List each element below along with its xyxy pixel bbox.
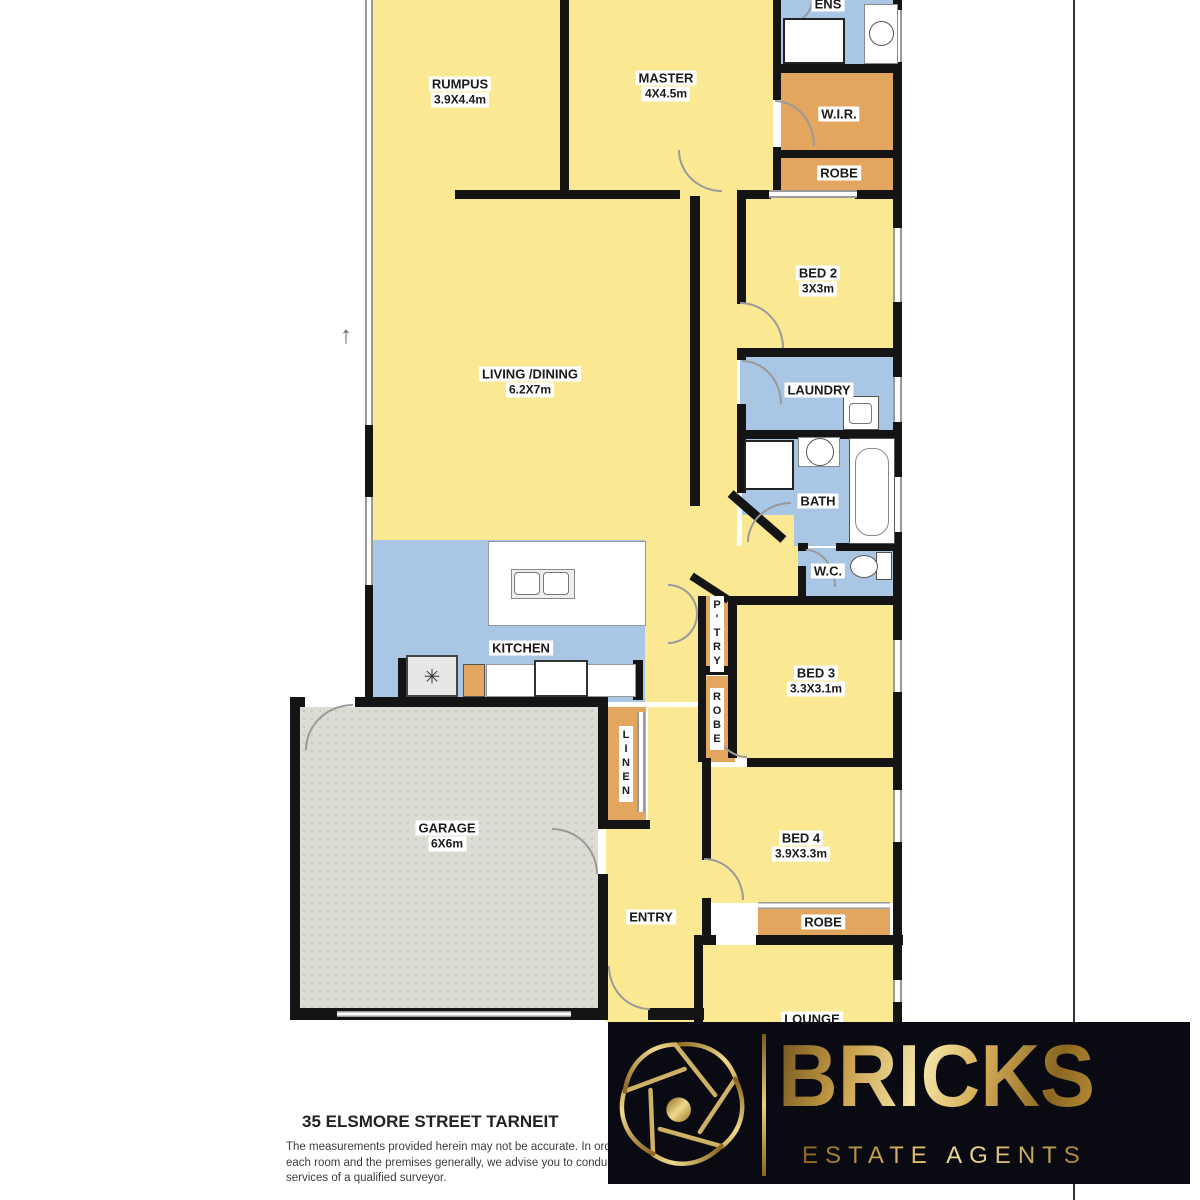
logo-center-dot (666, 1097, 691, 1122)
room-name: GARAGE (415, 821, 478, 836)
room-label-bed4: BED 4 3.9X3.3m (772, 831, 830, 862)
room-label-kitchen: KITCHEN (489, 641, 553, 656)
room-dims: 6.2X7m (506, 383, 554, 398)
wall-segment (365, 425, 373, 500)
window (893, 640, 902, 692)
wall-segment (290, 697, 305, 707)
cooktop (534, 660, 588, 697)
wall-segment (798, 566, 806, 598)
window (365, 497, 373, 585)
window (893, 980, 902, 1002)
wall-segment (702, 898, 711, 938)
north-arrow-icon: ↑ (340, 322, 352, 350)
wall-segment (290, 700, 300, 1018)
wall-segment (737, 196, 746, 304)
room-name: MASTER (636, 71, 697, 86)
fridge-icon: ✳ (424, 665, 441, 690)
property-address: 35 ELSMORE STREET TARNEIT (302, 1112, 559, 1132)
room-name: ROBE (801, 915, 845, 930)
room-name: ENS (812, 0, 845, 12)
bricks-flower-logo-icon (612, 1036, 752, 1170)
room-label-wc: W.C. (811, 564, 845, 579)
shower-bath (744, 440, 794, 490)
wall-segment (355, 697, 608, 707)
disclaimer-text: The measurements provided herein may not… (286, 1140, 621, 1187)
room-label-bed3: BED 3 3.3X3.1m (787, 666, 845, 697)
wall-segment (756, 935, 903, 945)
sliding-door-linen (637, 712, 645, 812)
room-area-entry-top (648, 707, 702, 820)
shower-ens (783, 18, 845, 64)
room-dims: 3.9X3.3m (772, 847, 830, 862)
wall-segment (781, 64, 893, 73)
garage-door (337, 1011, 571, 1017)
logo-divider-line (762, 1034, 766, 1176)
brand-tagline: ESTATE AGENTS (802, 1142, 1087, 1170)
sliding-door-robe-master (769, 190, 857, 198)
wall-segment (598, 820, 650, 829)
disclaimer-line: The measurements provided herein may not… (286, 1140, 621, 1156)
basin-ens (869, 21, 894, 46)
kitchen-sink-bowl-left (514, 572, 540, 595)
wall-segment (698, 596, 706, 762)
brand-logo-band: BRICKS ESTATE AGENTS (608, 1022, 1190, 1184)
wall-segment (855, 190, 902, 199)
room-name: ROBE (817, 166, 861, 181)
basin-bath (806, 438, 834, 466)
wall-segment (781, 150, 893, 158)
room-label-laundry: LAUNDRY (784, 383, 853, 398)
page-border-line (1073, 0, 1075, 1200)
room-label-robe-bed4: ROBE (801, 915, 845, 930)
room-name: BED 2 (796, 266, 840, 281)
room-label-robe-bed3: ROBE (710, 688, 724, 750)
window (893, 228, 902, 302)
wall-segment (598, 700, 608, 828)
room-label-master: MASTER 4X4.5m (636, 71, 697, 102)
wall-segment (836, 543, 902, 551)
room-label-living: LIVING /DINING 6.2X7m (479, 367, 581, 398)
room-label-rumpus: RUMPUS 3.9X4.4m (429, 77, 491, 108)
room-dims: 6X6m (428, 837, 466, 852)
wall-segment (690, 196, 700, 506)
room-name: W.I.R. (818, 107, 859, 122)
room-label-wir: W.I.R. (818, 107, 859, 122)
window (893, 790, 902, 842)
room-name: BATH (797, 494, 838, 509)
room-name: KITCHEN (489, 641, 553, 656)
room-dims: 3X3m (799, 282, 837, 297)
room-name: LAUNDRY (784, 383, 853, 398)
wall-segment (598, 874, 608, 1010)
kitchen-sink-bowl-right (543, 572, 569, 595)
wall-segment (773, 147, 781, 192)
brand-name: BRICKS (778, 1026, 1095, 1126)
wall-segment (648, 1008, 704, 1020)
wall-segment (702, 767, 711, 860)
room-name: W.C. (811, 564, 845, 579)
room-label-entry: ENTRY (626, 910, 676, 925)
room-dims: 3.3X3.1m (787, 682, 845, 697)
room-label-bed2: BED 2 3X3m (796, 266, 840, 297)
room-label-linen: LINEN (619, 726, 633, 802)
pantry-cabinet (463, 664, 485, 697)
wall-segment (365, 583, 373, 699)
toilet-bowl-wc (850, 555, 878, 578)
wall-segment (747, 758, 902, 767)
wall-segment (773, 0, 781, 100)
window (365, 0, 373, 425)
room-name: LIVING /DINING (479, 367, 581, 382)
room-label-garage: GARAGE 6X6m (415, 821, 478, 852)
wall-segment (455, 190, 680, 199)
wall-segment (702, 758, 711, 767)
room-name: BED 4 (779, 831, 823, 846)
room-dims: 3.9X4.4m (431, 93, 489, 108)
disclaimer-line: each room and the premises generally, we… (286, 1156, 621, 1172)
room-label-bath: BATH (797, 494, 838, 509)
disclaimer-line: services of a qualified surveyor. (286, 1171, 621, 1187)
wall-segment (737, 190, 771, 199)
toilet-tank-wc (876, 552, 892, 580)
room-name: RUMPUS (429, 77, 491, 92)
room-dims: 4X4.5m (642, 87, 690, 102)
laundry-tub-bowl (849, 403, 872, 424)
wall-segment (694, 935, 716, 945)
room-label-ens: ENS (812, 0, 845, 12)
room-area-lounge (694, 945, 893, 1022)
bathtub-inner (855, 448, 889, 536)
room-name: ENTRY (626, 910, 676, 925)
room-label-robe-master: ROBE (817, 166, 861, 181)
window (893, 377, 902, 422)
room-label-pantry: P'TRY (710, 596, 724, 672)
wall-segment (737, 348, 897, 357)
sliding-door-robe-bed4 (758, 902, 890, 909)
hall-patch-2 (737, 546, 798, 598)
wall-segment (728, 596, 902, 605)
room-name: BED 3 (794, 666, 838, 681)
floorplan-page: ✳ ↑ RUMPUS 3.9X4.4m MASTER 4X4.5m ENS W.… (0, 0, 1200, 1200)
wall-segment (560, 0, 569, 192)
